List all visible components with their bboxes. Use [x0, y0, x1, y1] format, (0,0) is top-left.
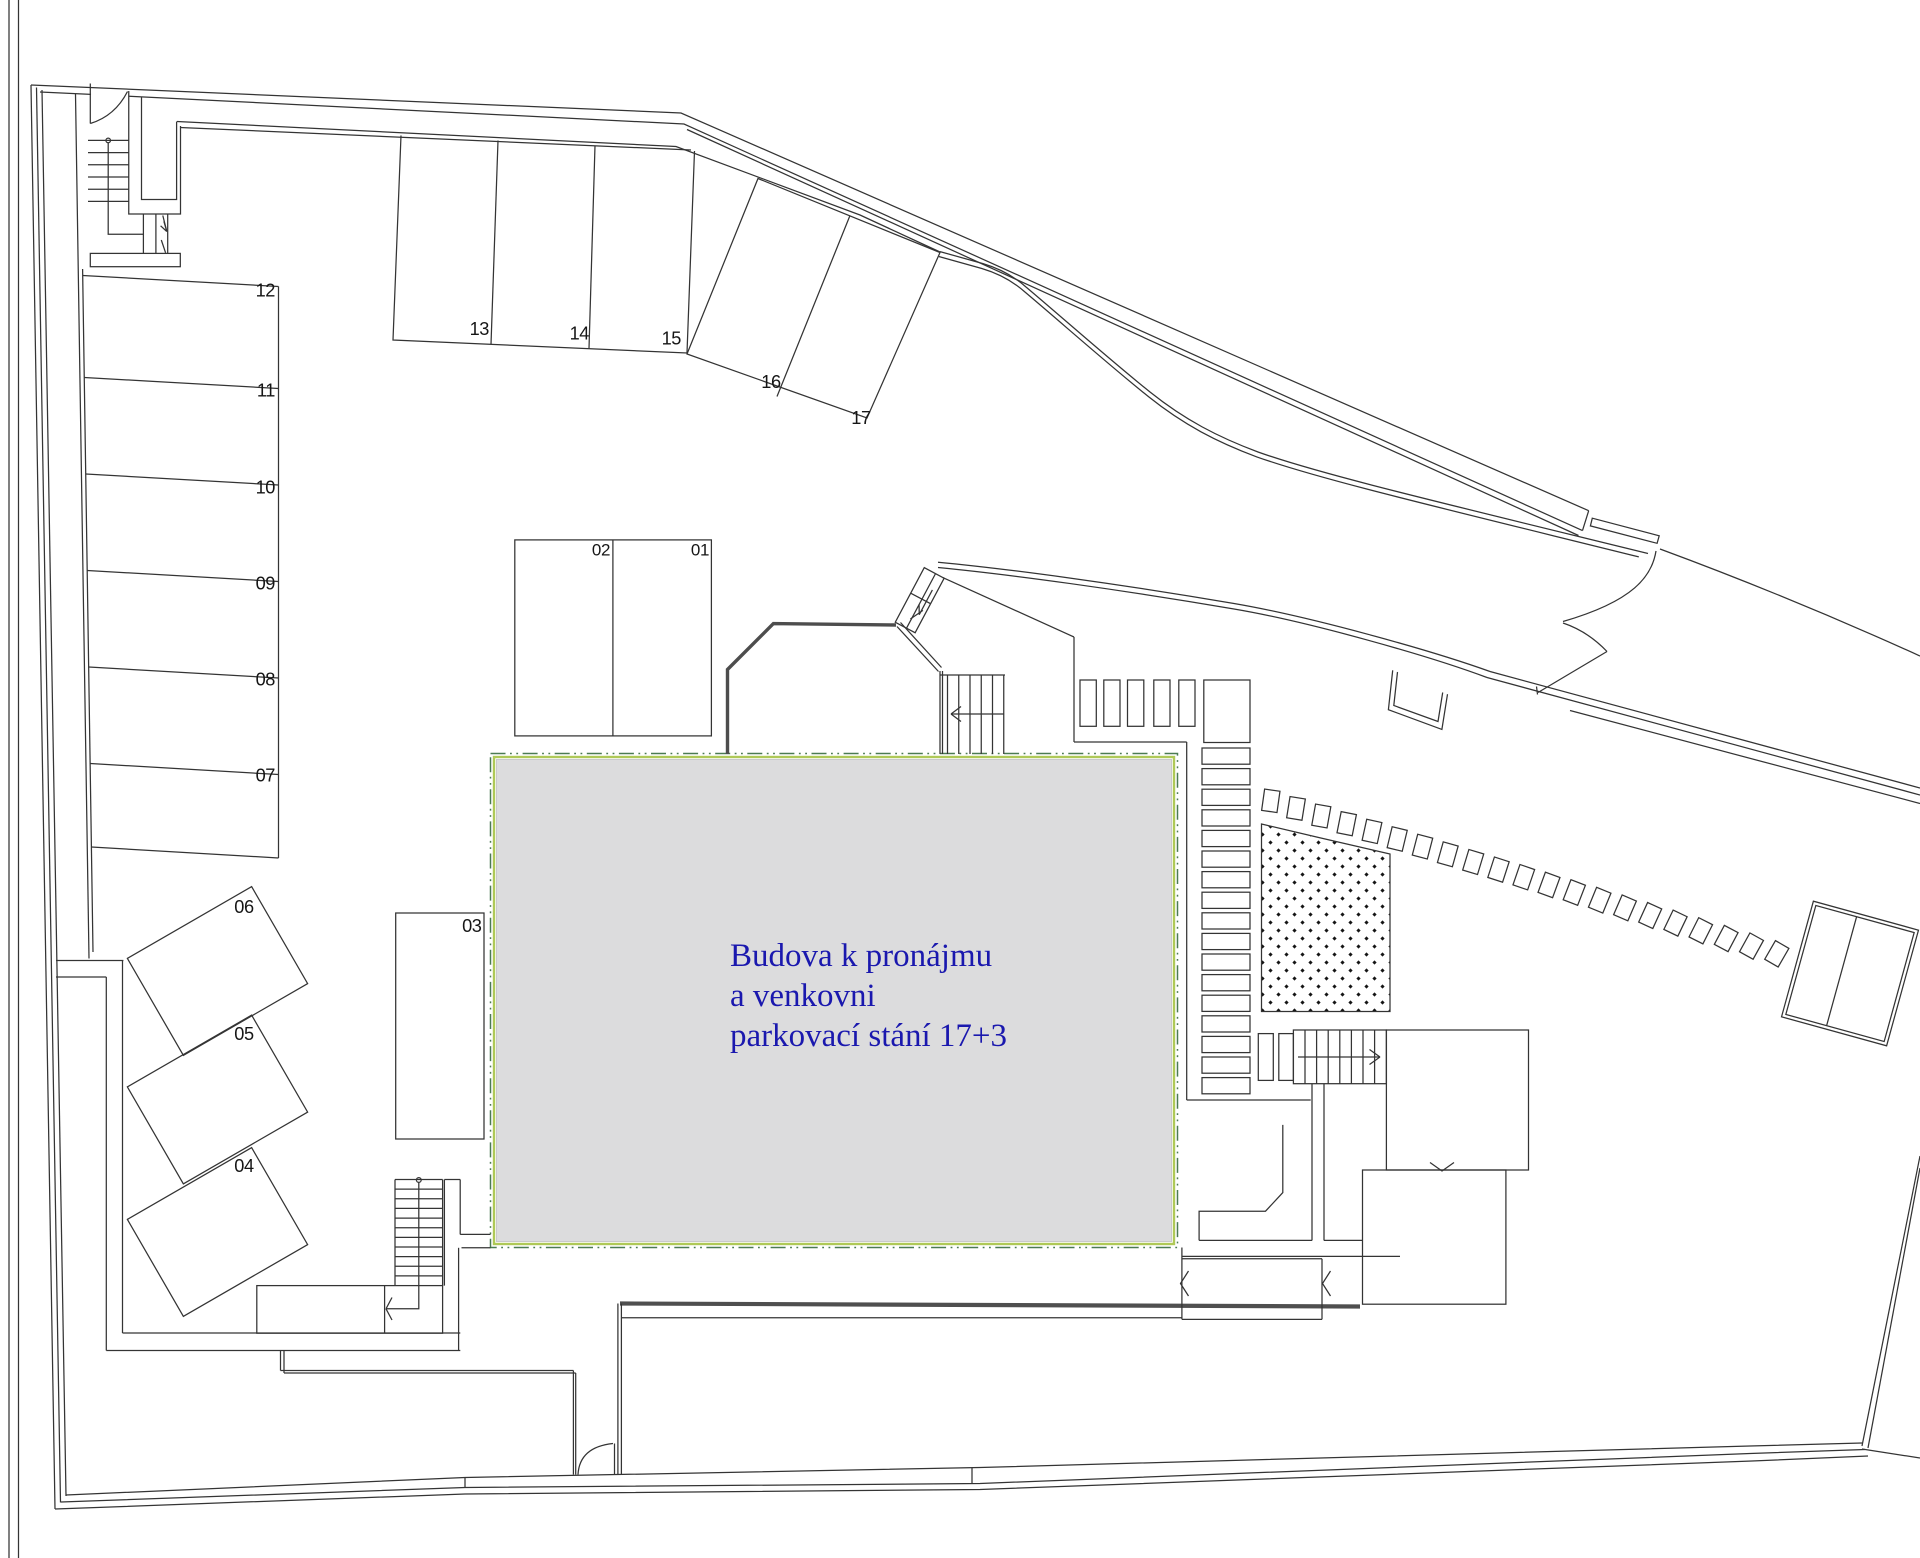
svg-text:05: 05: [234, 1024, 254, 1044]
svg-text:a venkovni: a venkovni: [730, 978, 876, 1014]
svg-text:09: 09: [256, 574, 276, 594]
svg-text:Budova k pronájmu: Budova k pronájmu: [730, 938, 992, 974]
svg-text:02: 02: [592, 541, 610, 560]
svg-text:12: 12: [256, 281, 276, 301]
svg-text:15: 15: [662, 329, 682, 349]
svg-text:11: 11: [257, 381, 275, 401]
svg-text:parkovací stání 17+3: parkovací stání 17+3: [730, 1018, 1007, 1054]
svg-text:17: 17: [851, 408, 871, 428]
svg-text:10: 10: [256, 478, 276, 498]
svg-text:16: 16: [761, 372, 781, 392]
svg-text:08: 08: [256, 670, 276, 690]
svg-text:07: 07: [256, 766, 276, 786]
svg-text:14: 14: [570, 324, 590, 344]
svg-text:01: 01: [691, 541, 709, 560]
svg-text:13: 13: [470, 319, 490, 339]
svg-text:04: 04: [234, 1156, 254, 1176]
svg-text:06: 06: [234, 897, 254, 917]
svg-text:03: 03: [462, 916, 482, 936]
